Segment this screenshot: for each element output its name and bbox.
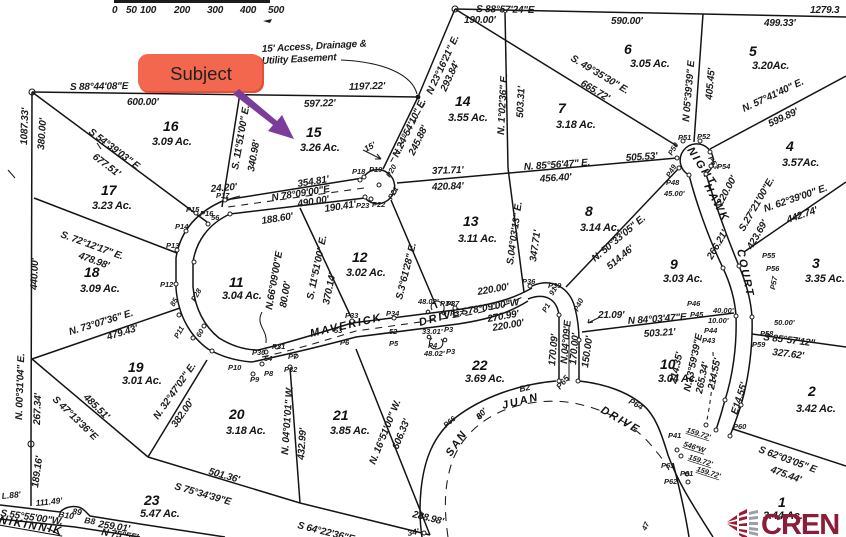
svg-text:18: 18 [84,264,100,280]
svg-text:0: 0 [112,5,118,16]
svg-text:5: 5 [749,43,757,59]
svg-text:23: 23 [143,492,160,508]
svg-text:P33: P33 [345,311,359,320]
svg-text:3.05 Ac.: 3.05 Ac. [630,58,670,70]
svg-text:33.01': 33.01' [422,327,443,336]
svg-text:3.69 Ac.: 3.69 Ac. [465,373,505,385]
svg-text:1087.33': 1087.33' [19,107,31,145]
svg-text:4: 4 [785,138,794,154]
svg-text:597.22': 597.22' [304,98,337,110]
svg-text:3.11 Ac.: 3.11 Ac. [458,233,497,245]
svg-text:P55: P55 [762,251,776,260]
svg-text:3.01 Ac.: 3.01 Ac. [122,375,162,387]
svg-text:3.85 Ac.: 3.85 Ac. [330,425,370,437]
svg-text:P18: P18 [352,167,366,176]
svg-text:3.26 Ac.: 3.26 Ac. [300,142,340,154]
svg-text:P56: P56 [766,264,780,273]
svg-text:P3: P3 [444,325,454,334]
svg-text:P62: P62 [664,477,678,486]
svg-text:11: 11 [229,274,244,290]
svg-text:12: 12 [352,249,368,265]
svg-text:10.00': 10.00' [708,316,729,325]
svg-text:P13: P13 [166,241,180,250]
svg-text:19: 19 [128,359,144,375]
svg-text:P23: P23 [356,201,370,210]
svg-text:21: 21 [332,407,349,423]
svg-text:300: 300 [207,5,224,16]
svg-text:52: 52 [389,327,398,336]
svg-text:503.21': 503.21' [643,327,676,340]
svg-text:P6: P6 [340,338,350,347]
svg-text:200: 200 [173,5,191,16]
svg-text:P37: P37 [450,309,464,318]
svg-text:P45: P45 [690,310,704,319]
svg-text:3.20Ac.: 3.20Ac. [752,60,789,72]
svg-text:P63: P63 [661,461,675,470]
svg-text:420.84': 420.84' [431,181,465,193]
svg-text:P54: P54 [717,162,731,171]
svg-text:P19: P19 [369,165,383,174]
svg-text:CREN: CREN [761,509,839,537]
svg-text:P5: P5 [389,339,399,348]
svg-text:3.02 Ac.: 3.02 Ac. [346,267,386,279]
svg-text:P3: P3 [446,347,456,356]
svg-text:3.35 Ac.: 3.35 Ac. [805,273,845,285]
svg-text:P15: P15 [186,205,200,214]
svg-text:14: 14 [455,93,471,109]
svg-text:56: 56 [211,213,220,222]
svg-text:Subject: Subject [170,63,232,84]
svg-text:3.09 Ac.: 3.09 Ac. [152,136,192,148]
svg-text:267.34': 267.34' [32,392,44,426]
svg-text:P58: P58 [760,329,774,338]
svg-text:P60: P60 [733,422,747,431]
svg-text:17: 17 [101,182,118,198]
svg-text:P59: P59 [752,340,766,349]
svg-text:432.99': 432.99' [296,427,309,461]
svg-text:3.18 Ac.: 3.18 Ac. [556,119,596,131]
svg-text:40.00': 40.00' [712,306,734,315]
svg-text:89: 89 [72,506,83,517]
svg-text:2: 2 [807,383,816,399]
svg-text:54: 54 [264,354,273,363]
svg-text:500: 500 [268,5,285,16]
svg-text:1197.22': 1197.22' [349,81,386,93]
svg-text:45.00': 45.00' [663,189,685,198]
svg-text:3.03 Ac.: 3.03 Ac. [663,273,703,285]
svg-text:3.55 Ac.: 3.55 Ac. [448,112,488,124]
svg-text:N. 00°31'04" E.: N. 00°31'04" E. [14,353,27,420]
svg-text:13: 13 [463,213,479,229]
svg-text:48.02': 48.02' [417,297,439,306]
svg-text:P22: P22 [372,200,386,209]
svg-text:3.04 Ac.: 3.04 Ac. [658,373,698,385]
svg-text:499.33': 499.33' [763,18,796,29]
svg-text:P34: P34 [386,309,400,318]
svg-text:P46: P46 [687,299,701,308]
svg-text:B8: B8 [84,515,96,526]
svg-text:6: 6 [624,41,632,57]
svg-text:1: 1 [778,494,786,510]
svg-text:3.09 Ac.: 3.09 Ac. [80,283,120,295]
svg-text:P14: P14 [175,222,189,231]
svg-text:21.09': 21.09' [597,310,625,321]
svg-text:P32: P32 [284,365,298,374]
svg-text:P9: P9 [250,375,260,384]
svg-text:9: 9 [670,256,678,272]
svg-text:P36: P36 [522,277,536,286]
svg-text:15: 15 [306,124,322,140]
svg-text:P34: P34 [440,299,454,308]
svg-text:456.40': 456.40' [538,172,572,185]
svg-text:48.02': 48.02' [423,349,445,358]
svg-text:50.00': 50.00' [774,318,795,327]
svg-text:P7: P7 [288,352,298,361]
svg-text:P17: P17 [216,191,230,200]
svg-text:590.00': 590.00' [611,16,643,27]
svg-text:P8: P8 [264,369,274,378]
svg-text:100: 100 [140,5,157,16]
svg-text:P44: P44 [704,326,718,335]
svg-text:3: 3 [812,255,820,271]
svg-text:1279.3: 1279.3 [810,5,840,16]
svg-text:3.42 Ac.: 3.42 Ac. [796,403,836,415]
svg-text:22: 22 [471,357,488,373]
svg-text:503.31': 503.31' [515,85,528,118]
svg-text:600.00': 600.00' [127,97,159,108]
svg-text:P61: P61 [680,469,693,478]
svg-text:P10: P10 [228,363,242,372]
svg-text:3.57Ac.: 3.57Ac. [782,157,819,169]
svg-text:P12: P12 [160,280,174,289]
svg-text:P31: P31 [272,342,285,351]
svg-text:8: 8 [585,203,593,219]
svg-text:3.18 Ac.: 3.18 Ac. [226,425,266,437]
svg-text:380.00': 380.00' [36,117,49,150]
svg-text:P48: P48 [666,178,680,187]
svg-text:371.71': 371.71' [432,165,465,177]
svg-text:L.88': L.88' [1,489,22,501]
svg-text:5.47 Ac.: 5.47 Ac. [140,508,180,520]
svg-text:10: 10 [660,356,676,372]
svg-text:P52: P52 [697,132,711,141]
svg-text:3.04 Ac.: 3.04 Ac. [222,290,262,302]
svg-text:505.53': 505.53' [625,151,658,164]
svg-text:P41: P41 [668,431,681,440]
svg-text:3.14 Ac.: 3.14 Ac. [580,222,620,234]
svg-text:3.23 Ac.: 3.23 Ac. [92,200,132,212]
svg-text:7: 7 [558,100,567,116]
svg-text:S 88°44'08"E: S 88°44'08"E [70,81,129,93]
svg-text:440.00': 440.00' [29,257,41,291]
svg-text:50: 50 [126,5,137,16]
svg-text:P51: P51 [678,133,691,142]
svg-text:20: 20 [228,406,245,422]
svg-text:P43: P43 [702,336,716,345]
svg-text:16: 16 [163,118,179,134]
svg-text:400: 400 [239,5,257,16]
